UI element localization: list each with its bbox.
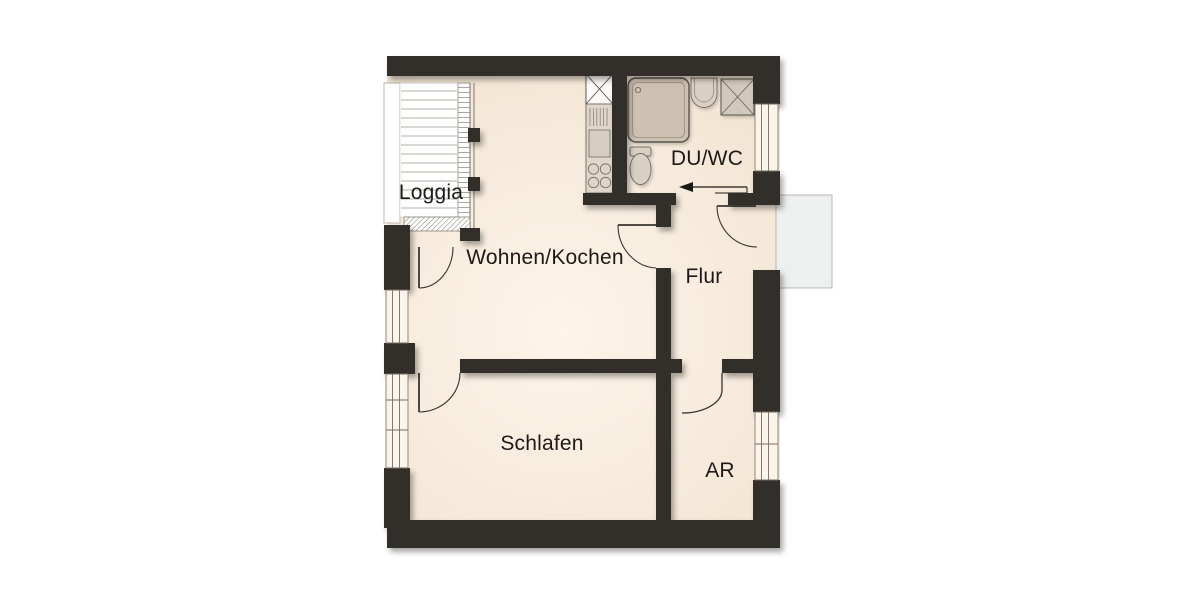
wall-ar-left — [656, 359, 682, 373]
wall-bath-door-stub — [728, 193, 757, 205]
wall-right-4 — [753, 480, 780, 520]
wall-kitchen-bath — [612, 56, 627, 193]
loggia-railing — [384, 83, 400, 223]
floor-plan-page: Loggia Wohnen/Kochen DU/WC Flur Schlafen… — [0, 0, 1200, 600]
wall-ar-stub — [722, 359, 757, 373]
wall-schlafen — [460, 359, 660, 373]
floor-plan-drawing — [0, 0, 1200, 600]
window-wohnen-left — [386, 290, 408, 343]
wall-left-lower — [384, 468, 410, 528]
wall-right-2 — [753, 171, 780, 205]
toilet-icon — [630, 147, 651, 185]
room-label-flur: Flur — [686, 265, 723, 289]
entrance-landing — [776, 195, 832, 288]
washing-machine-icon — [721, 79, 754, 115]
room-label-ar: AR — [705, 459, 735, 483]
loggia-shutter-ticks — [458, 83, 470, 231]
window-duwc-right — [755, 104, 778, 171]
room-label-schlafen: Schlafen — [500, 432, 583, 456]
wall-flur-vertical — [656, 268, 671, 520]
washbasin-icon — [691, 78, 717, 108]
kitchen-fixtures — [586, 74, 613, 193]
wall-right-1 — [753, 74, 780, 104]
room-label-du-wc: DU/WC — [671, 147, 743, 171]
room-label-wohnen-kochen: Wohnen/Kochen — [466, 246, 624, 270]
wall-left-middle — [384, 343, 415, 374]
shower-icon — [628, 78, 689, 142]
wall-flur-stub — [656, 197, 671, 227]
loggia-pier-upper — [468, 128, 480, 142]
wall-left-upper — [384, 225, 410, 290]
loggia-pier-lower — [468, 177, 480, 191]
window-ar-right — [755, 412, 778, 480]
wall-right-3 — [753, 270, 780, 412]
kitchen-sink-icon — [589, 130, 610, 157]
loggia-area — [384, 83, 474, 231]
wall-bottom — [387, 520, 780, 548]
window-schlafen-left — [386, 374, 408, 468]
wall-top — [387, 56, 780, 76]
tall-cabinet-icon — [586, 74, 613, 104]
room-label-loggia: Loggia — [399, 181, 463, 205]
loggia-door-stub — [460, 228, 480, 241]
